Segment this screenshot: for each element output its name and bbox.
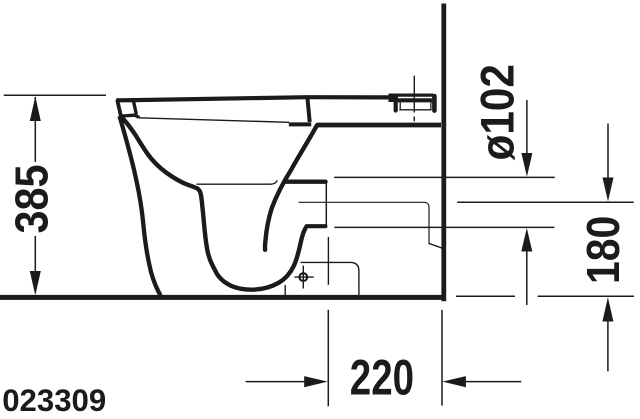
svg-text:180: 180	[577, 216, 629, 284]
svg-text:023309: 023309	[2, 383, 106, 418]
svg-text:220: 220	[350, 351, 414, 406]
svg-text:ø102: ø102	[473, 64, 525, 160]
svg-text:385: 385	[7, 164, 59, 233]
